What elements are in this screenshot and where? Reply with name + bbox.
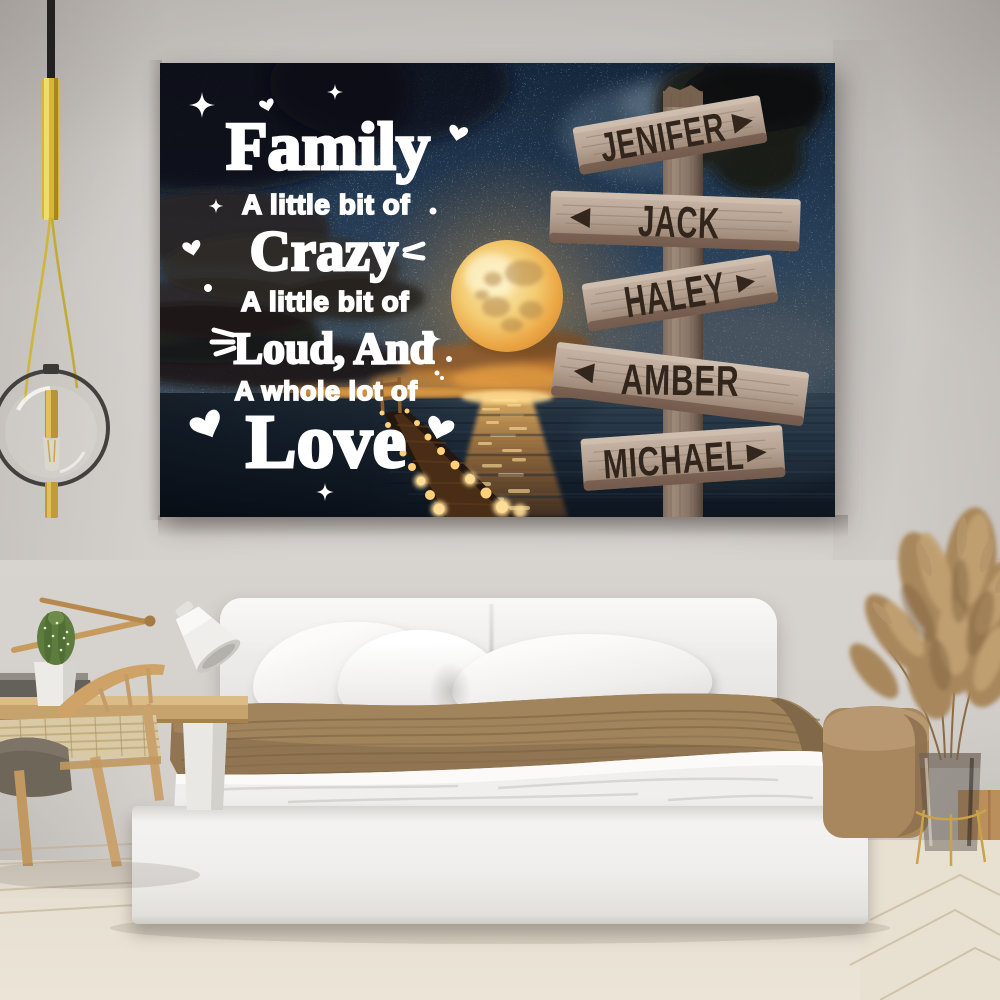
svg-text:Family: Family	[226, 108, 430, 184]
svg-text:Loud, And: Loud, And	[234, 324, 435, 373]
svg-text:Love: Love	[246, 400, 406, 484]
svg-text:A little bit of: A little bit of	[242, 189, 410, 220]
svg-text:AMBER: AMBER	[620, 355, 740, 405]
svg-text:A little bit of: A little bit of	[241, 286, 409, 317]
svg-text:JACK: JACK	[637, 196, 720, 248]
svg-text:Crazy: Crazy	[250, 220, 399, 283]
